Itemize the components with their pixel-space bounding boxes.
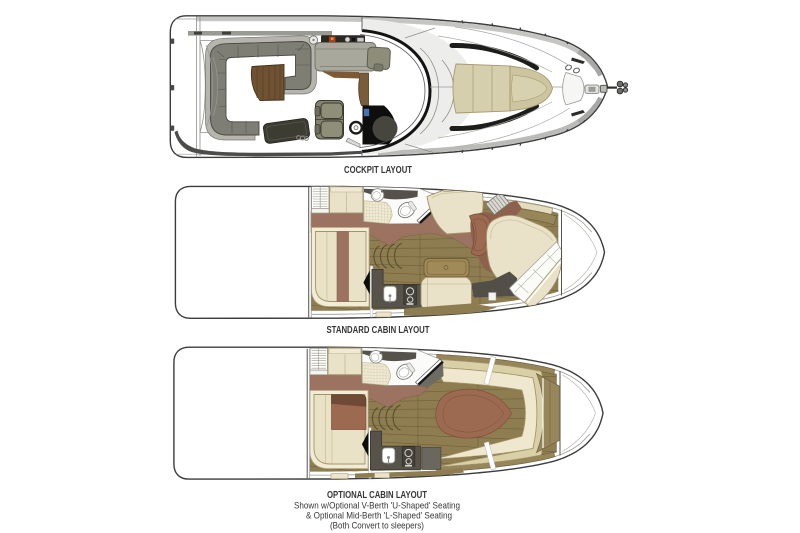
svg-text:STANDARD CABIN LAYOUT: STANDARD CABIN LAYOUT xyxy=(327,324,430,336)
svg-text:COCKPIT LAYOUT: COCKPIT LAYOUT xyxy=(344,164,412,176)
svg-text:OPTIONAL CABIN LAYOUT: OPTIONAL CABIN LAYOUT xyxy=(327,489,427,501)
svg-text:(Both Convert to sleepers): (Both Convert to sleepers) xyxy=(330,521,424,532)
